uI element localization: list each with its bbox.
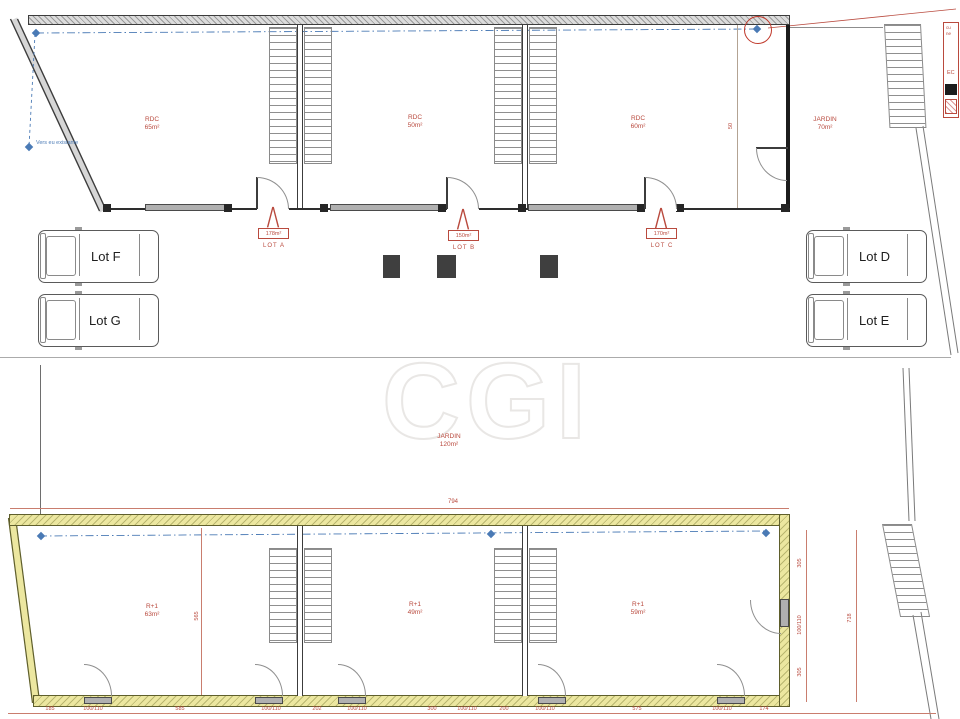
top-plan-stairs-2-right [529,27,557,164]
storefront-window-3 [528,204,638,211]
bdim-6: 300 [427,706,436,712]
car-g-rear-window [139,298,140,340]
top-plan-stairs-2-left [494,27,522,164]
car-g-mirror-bottom [75,347,82,350]
bottom-plan-stairs-1-right [304,548,332,643]
room-r1-3-name: R+1 [632,601,644,608]
car-f-mirror-bottom [75,283,82,286]
dim-line-right-1 [806,530,807,702]
bdim-5: 100/110 [347,706,366,712]
left-boundary-line [40,365,41,518]
car-f-windshield [79,234,80,276]
bdim-12: 174 [759,706,768,712]
top-plan-left-wall-fill [14,19,103,211]
bottom-right-door-sill [780,599,789,627]
bottom-plan-top-wall [9,514,790,526]
bottom-plan-left-wall-edge-inner [16,517,40,701]
car-lot-e: Lot E [806,294,927,347]
bottom-dim-line [8,713,936,714]
room-r1-3-area: 59m² [631,609,646,616]
lot-a-name: LOT A [263,243,285,249]
top-plan-left-wall-edge-outer [11,19,100,211]
storefront-cap-8 [781,204,789,212]
legend-text-2: ne [946,31,951,36]
jardin-area: 70m² [818,124,833,131]
jardin-name: JARDIN [813,116,836,123]
lot-a-arrow: ⋀ [267,207,279,228]
parking-label-lot-d: Lot D [859,249,890,264]
top-plan-top-wall [28,15,790,25]
bottom-door-arc-5 [717,664,745,696]
top-plan-dividing-wall-2 [522,25,528,210]
bottom-door-arc-4 [538,664,566,696]
blue-marker-top-left [32,29,40,37]
jardin-top-boundary [790,27,883,28]
room-1-name: RDC [145,116,159,123]
room-3-name: RDC [631,115,645,122]
garden-between-name: JARDIN [437,433,460,440]
legend-text-3: EC [947,71,955,76]
bdim-2: 585 [175,706,184,712]
blue-marker-bottom-mid [487,530,495,538]
top-plan-blue-dashed-line [29,34,35,147]
bdim-0: 185 [45,706,54,712]
logo-square-2 [437,255,456,278]
dim-line-right-2 [856,530,857,702]
room-label-rdc-3: RDC 60m² [631,115,646,130]
car-d-hood [814,236,844,276]
dim-line-794 [10,508,789,509]
bottom-door-sill-1 [84,697,112,704]
top-plan-right-wall [786,25,790,212]
bdim-1: 100/110 [83,706,102,712]
car-e-hood [814,300,844,340]
bdim-3: 100/110 [261,706,280,712]
storefront-cap-1 [103,204,111,212]
bottom-door-arc-3 [338,664,366,696]
bottom-door-sill-4 [538,697,566,704]
car-f-mirror-top [75,227,82,230]
room-label-r1-2: R+1 49m² [408,601,423,616]
bdim-10: 575 [632,706,641,712]
exterior-stair-top-right [884,24,926,128]
car-e-windshield [847,298,848,340]
bottom-door-sill-2 [255,697,283,704]
lot-c-name: LOT C [651,243,674,249]
dim-794-label: 794 [448,499,458,505]
room-label-rdc-2: RDC 50m² [408,114,423,129]
bottom-plan-dividing-wall-1 [297,526,303,696]
bottom-plan-left-wall-edge-outer [9,518,33,703]
lot-b-arrow: ⋀ [457,209,469,230]
car-d-mirror-top [843,227,850,230]
bottom-plan-blue-axis-line [39,531,766,536]
car-d-mirror-bottom [843,283,850,286]
storefront-cap-5 [518,204,526,212]
car-lot-f: Lot F [38,230,159,283]
top-plan-stairs-1-right [304,27,332,164]
room-1-area: 65m² [145,124,160,131]
parking-label-lot-e: Lot E [859,313,889,328]
bottom-door-sill-3 [338,697,366,704]
legend-box: cu ne EC [943,22,959,118]
top-plan-thin-partition [737,25,738,210]
car-lot-d: Lot D [806,230,927,283]
bottom-plan-left-wall-fill [12,518,36,702]
right-boundary-mid-1 [903,368,909,521]
property-line [0,357,951,358]
blue-marker-left-wall [25,143,33,151]
car-e-mirror-bottom [843,347,850,350]
car-f-hood [46,236,76,276]
lot-b-area-box: 150m² [448,230,479,241]
lot-b-name: LOT B [453,245,475,251]
right-boundary-lower-2 [921,612,939,719]
room-r1-2-area: 49m² [408,609,423,616]
room-2-area: 50m² [408,122,423,129]
top-plan-left-wall-edge-inner [18,19,107,211]
legend-hatch-band [945,99,957,114]
floor-plan-canvas: CGI [0,0,960,719]
blue-marker-bottom-right [762,529,770,537]
bottom-plan-stairs-2-left [494,548,522,643]
bdim-4: 202 [312,706,321,712]
room-3-area: 60m² [631,123,646,130]
car-e-mirror-top [843,291,850,294]
bdim-11: 100/110 [712,706,731,712]
right-boundary-mid-2 [909,368,915,521]
blue-marker-bottom-left [37,532,45,540]
exterior-stair-bottom-right [882,524,930,617]
car-g-windshield [79,298,80,340]
blue-note-text: Vers eu existante [36,140,78,146]
room-2-name: RDC [408,114,422,121]
room-r1-1-name: R+1 [146,603,158,610]
bottom-plan-stairs-1-left [269,548,297,643]
bottom-plan-dividing-wall-2 [522,526,528,696]
dim-right-100-110: 100/110 [797,615,803,634]
bottom-plan-bottom-wall [33,695,781,707]
bottom-door-arc-2 [255,664,283,696]
bottom-door-sill-5 [717,697,745,704]
bottom-door-arc-1 [84,664,112,696]
jardin-door-arc [756,148,787,181]
logo-square-1 [383,255,400,278]
garden-between-label: JARDIN 120m² [437,433,460,448]
room-label-jardin: JARDIN 70m² [813,116,836,131]
storefront-cap-2 [224,204,232,212]
right-boundary-upper-2 [923,126,958,353]
storefront-window-1 [145,204,227,211]
door-arc-b [447,177,479,209]
parking-label-lot-g: Lot G [89,313,121,328]
lot-c-area-box: 170m² [646,228,677,239]
dim-50: 50 [728,123,734,129]
car-d-rear-window [907,234,908,276]
legend-black-band [945,84,957,95]
dim-line-565 [201,528,202,695]
room-r1-2-name: R+1 [409,601,421,608]
bdim-7: 100/110 [457,706,476,712]
storefront-window-2 [330,204,440,211]
storefront-cap-3 [320,204,328,212]
bottom-right-door-arc [750,600,781,634]
dim-565-label: 565 [194,611,200,620]
storefront-cap-4 [438,204,446,212]
dim-right-305b: 305 [797,667,803,676]
bdim-8: 200 [499,706,508,712]
parking-label-lot-f: Lot F [91,249,121,264]
lot-c-arrow: ⋀ [655,208,667,229]
legend-text-1: cu [946,25,951,30]
red-leader-line [768,9,956,28]
car-f-rear-window [139,234,140,276]
car-g-mirror-top [75,291,82,294]
room-r1-1-area: 63m² [145,611,160,618]
car-lot-g: Lot G [38,294,159,347]
bdim-9: 100/110 [535,706,554,712]
dim-right-305a: 305 [797,558,803,567]
dim-right-718: 718 [847,613,853,622]
room-label-r1-1: R+1 63m² [145,603,160,618]
car-e-rear-window [907,298,908,340]
top-plan-dividing-wall-1 [297,25,303,210]
logo-square-3 [540,255,558,278]
lot-a-area-box: 178m² [258,228,289,239]
room-label-rdc-1: RDC 65m² [145,116,160,131]
car-g-hood [46,300,76,340]
car-d-windshield [847,234,848,276]
bottom-plan-stairs-2-right [529,548,557,643]
garden-between-area: 120m² [440,441,458,448]
top-plan-blue-axis-line [36,29,756,33]
top-plan-stairs-1-left [269,27,297,164]
storefront-cap-7 [676,204,684,212]
right-boundary-lower-1 [913,615,931,719]
room-label-r1-3: R+1 59m² [631,601,646,616]
